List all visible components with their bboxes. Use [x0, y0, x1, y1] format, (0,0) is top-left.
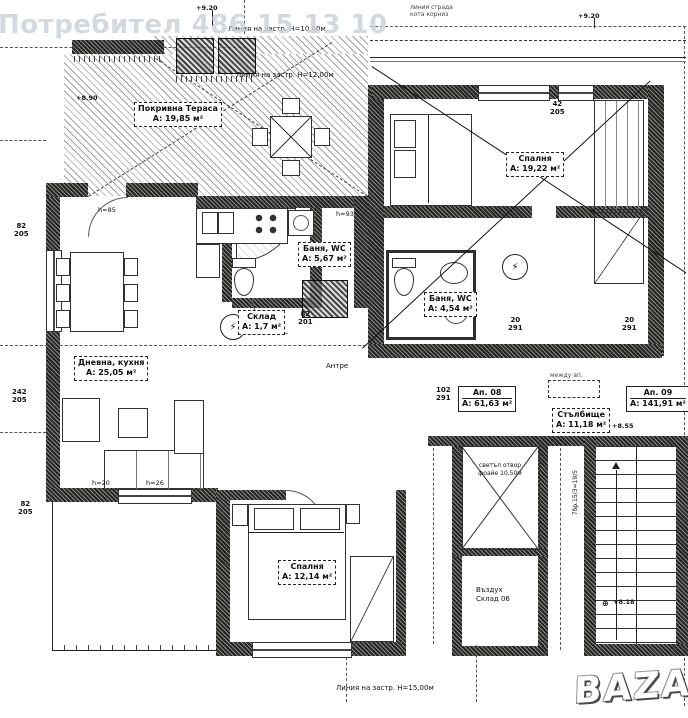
wall-segment: [216, 490, 230, 652]
toilet-bowl: [234, 268, 254, 296]
wall-segment: [46, 488, 118, 502]
room-area: А: 1,7 м²: [242, 322, 281, 332]
electrical-panel-icon: ⚡: [502, 254, 528, 280]
wall-segment: [126, 183, 198, 197]
chair: [124, 258, 138, 276]
window: [558, 85, 594, 101]
kitchen-sink: [218, 212, 234, 234]
chair: [282, 160, 300, 176]
build-line-h15: Линия на застр. Н=15,00м: [336, 684, 434, 693]
chair: [252, 128, 268, 146]
window: [252, 642, 352, 658]
air-shaft-line1: Въздух: [476, 586, 510, 595]
air-shaft-line2: Склад 06: [476, 595, 510, 604]
elevation-mark: +8.55: [612, 422, 633, 430]
chair: [56, 284, 70, 302]
chair: [282, 98, 300, 114]
wall-segment: [190, 488, 218, 502]
stair-calc-note: 7бр.15/3=19/5: [572, 470, 580, 515]
air-shaft-label: Въздух Склад 06: [476, 586, 510, 604]
bed-line: [428, 115, 429, 203]
nightstand: [232, 504, 248, 526]
room-area: А: 12,14 м²: [282, 572, 332, 582]
pillow: [300, 508, 340, 530]
room-name: Спалня: [282, 562, 332, 572]
apartment-area: А: 141,91 м²: [630, 399, 686, 409]
sofa-corner: [174, 400, 204, 454]
apartment-label-09: Ап. 09 А: 141,91 м²: [626, 386, 688, 412]
dimension-value: 82: [298, 310, 313, 318]
room-label-bedroom-1: Спалня А: 19,22 м²: [506, 152, 564, 177]
user-watermark: Потребител 486 15 13 10: [0, 10, 388, 40]
lightning-glyph: ⚡: [511, 262, 518, 273]
room-label-living: Дневна, кухня А: 25,05 м²: [74, 356, 148, 381]
room-area: А: 4,54 м²: [428, 304, 473, 314]
dimension: 82 205: [14, 222, 29, 238]
room-area: А: 19,22 м²: [510, 164, 560, 174]
room-name: Спалня: [510, 154, 560, 164]
shaft-wall: [452, 556, 462, 652]
height-note: h=26: [146, 479, 164, 487]
chair: [314, 128, 330, 146]
stair-direction-line: [616, 470, 617, 640]
wardrobe: [594, 100, 644, 210]
bed-line: [248, 532, 344, 533]
elevation-mark: +9.20: [578, 12, 599, 20]
dimension: 242 205: [12, 388, 27, 404]
armchair: [62, 398, 100, 442]
chair: [124, 310, 138, 328]
shaft-wall: [452, 646, 548, 656]
dimension-value: 42: [550, 100, 565, 108]
pillow: [394, 120, 416, 148]
dimension-value: 242: [12, 388, 27, 396]
skylight-shaft: [218, 38, 256, 74]
stair-arrow: [612, 462, 620, 469]
dimension-value: 291: [508, 324, 523, 332]
window: [118, 488, 192, 504]
floor-plan-canvas: ⚡ ⚡: [0, 0, 688, 718]
dimension-value: 205: [14, 230, 29, 238]
wall-segment: [216, 490, 286, 500]
survey-mark-icon: ⊕: [602, 599, 609, 609]
anteroom-label: Антре: [326, 362, 348, 371]
elevation-mark: +8.90: [76, 94, 97, 102]
room-area: А: 5,67 м²: [302, 254, 347, 264]
room-label-roof-terrace: Покривна Тераса А: 19,85 м²: [134, 102, 222, 127]
skylight-shaft: [176, 38, 214, 74]
dimension: 42 205: [550, 100, 565, 116]
shaft-wall: [452, 446, 462, 556]
dimension-value: 82: [18, 500, 33, 508]
fridge: [196, 244, 220, 278]
room-area: А: 25,05 м²: [78, 368, 144, 378]
kitchen-sink: [202, 212, 218, 234]
corridor-line: [433, 448, 434, 644]
stair-stringer: [636, 446, 637, 644]
stove-burners: [252, 211, 280, 237]
dimension-value: 20: [622, 316, 637, 324]
grid-line: [0, 140, 46, 141]
between-apartments-note: между ап.: [550, 372, 583, 380]
wall-segment: [350, 642, 402, 656]
room-name: Стълбище: [556, 410, 606, 420]
wall-segment: [396, 490, 406, 656]
height-note: h=85: [98, 206, 116, 214]
setback-line: [370, 40, 686, 41]
apartment-name: Ап. 08: [462, 388, 512, 399]
wall-segment: [222, 238, 232, 302]
dimension-value: 291: [622, 324, 637, 332]
wall-segment: [46, 330, 60, 490]
dimension-value: 82: [14, 222, 29, 230]
dimension-value: 102: [436, 386, 451, 394]
room-name: Баня, WC: [428, 294, 473, 304]
roof-note-line2: кота корниз: [410, 11, 449, 19]
dining-table: [70, 252, 124, 332]
toilet-tank: [392, 258, 416, 268]
grid-line: [346, 652, 347, 702]
height-note: h=20: [92, 479, 110, 487]
dimension: 102 291: [436, 386, 451, 402]
chair: [56, 310, 70, 328]
parapet-wall: [72, 40, 164, 54]
room-label-storage: Склад А: 1,7 м²: [238, 310, 285, 335]
site-logo-watermark: BAZAR: [573, 661, 688, 712]
apartment-label-08: Ап. 08 А: 61,63 м²: [458, 386, 516, 412]
room-name: Дневна, кухня: [78, 358, 144, 368]
elevator-note: светъл отвор фоайе 10,50м: [463, 462, 537, 477]
grid-line: [0, 432, 46, 433]
build-line-h12: Линия на застр. Н=12,00м: [236, 71, 334, 80]
stair-wall: [584, 436, 596, 652]
pillow: [394, 150, 416, 178]
between-apartments-box: [548, 380, 600, 398]
door-arc: [88, 197, 128, 237]
terrace-table: [270, 116, 312, 158]
dimension-value: 201: [298, 318, 313, 326]
wall-segment: [428, 436, 688, 446]
roof-edge-line: [370, 57, 686, 58]
coffee-table: [118, 408, 148, 438]
room-name: Баня, WC: [302, 244, 347, 254]
setback-line: [370, 26, 686, 27]
room-label-bath-1: Баня, WC А: 5,67 м²: [298, 242, 351, 267]
stair-wall: [584, 644, 688, 656]
elevator-note-line2: фоайе 10,50м: [463, 470, 537, 478]
washing-machine-drum: [293, 215, 309, 231]
elevator-note-line1: светъл отвор: [463, 462, 537, 470]
shaft-wall: [538, 556, 548, 652]
apartment-area: А: 61,63 м²: [462, 399, 512, 409]
dimension-value: 291: [436, 394, 451, 402]
room-area: А: 19,85 м²: [138, 114, 218, 124]
dimension: 20 291: [508, 316, 523, 332]
dimension-value: 205: [550, 108, 565, 116]
chair: [56, 258, 70, 276]
room-label-bedroom-2: Спалня А: 12,14 м²: [278, 560, 336, 585]
wall-segment: [354, 196, 368, 308]
toilet-tank: [232, 258, 256, 268]
nightstand: [346, 504, 360, 524]
wall-segment: [46, 183, 88, 197]
height-note: h=93: [336, 210, 354, 218]
lightning-glyph: ⚡: [229, 322, 236, 333]
wall-segment: [372, 85, 478, 99]
sink: [440, 262, 468, 284]
wall-segment: [216, 642, 252, 656]
wall-segment: [368, 85, 384, 347]
room-name: Склад: [242, 312, 281, 322]
dimension: 82 201: [298, 310, 313, 326]
room-name: Покривна Тераса: [138, 104, 218, 114]
room-label-staircase: Стълбище А: 11,18 м²: [552, 408, 610, 433]
dimension: 20 291: [622, 316, 637, 332]
balcony-rail: [52, 500, 53, 650]
apartment-name: Ап. 09: [630, 388, 686, 399]
pillow: [254, 508, 294, 530]
roof-edge-line: [370, 61, 686, 62]
cabinet: [594, 212, 644, 284]
wall-segment: [46, 197, 60, 250]
wall-segment: [196, 196, 356, 208]
dimension: 82 205: [18, 500, 33, 516]
dimension-value: 20: [508, 316, 523, 324]
wall-segment: [368, 344, 662, 358]
balcony-rail: [52, 650, 218, 651]
wall-segment: [648, 85, 664, 356]
room-label-bath-2: Баня, WC А: 4,54 м²: [424, 292, 477, 317]
tick-row: [74, 56, 162, 62]
dimension-value: 205: [18, 508, 33, 516]
wardrobe: [350, 556, 394, 642]
dimension-value: 205: [12, 396, 27, 404]
room-area: А: 11,18 м²: [556, 420, 606, 430]
corridor-line: [560, 438, 561, 650]
elevation-mark: +8.18: [613, 598, 634, 606]
window: [478, 85, 550, 101]
chair: [124, 284, 138, 302]
door-opening: [428, 330, 454, 336]
stair-wall: [676, 436, 688, 652]
